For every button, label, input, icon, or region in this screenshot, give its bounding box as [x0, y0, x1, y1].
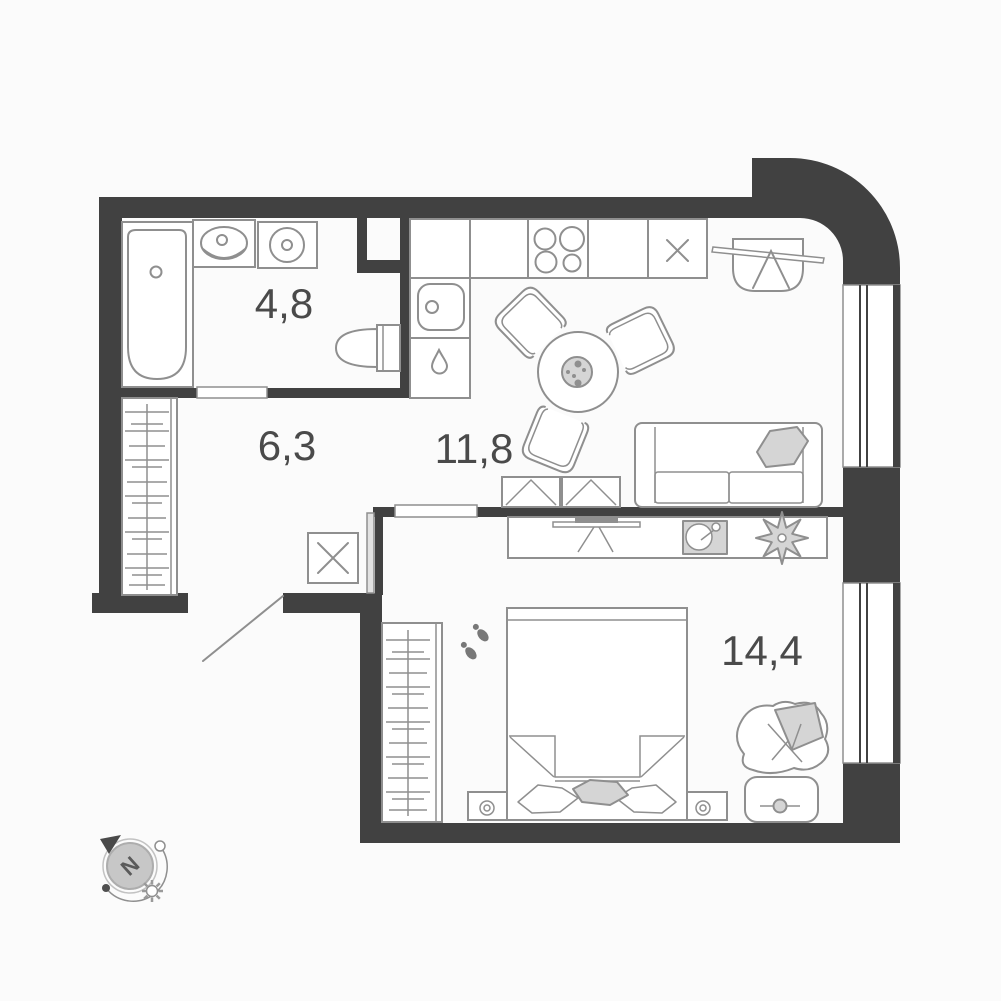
area-label-kitchen-living: 11,8 — [435, 425, 514, 472]
dining-table — [538, 332, 618, 412]
window-living-room — [843, 285, 900, 467]
area-label-bedroom: 14,4 — [721, 627, 803, 674]
compass: N — [100, 835, 167, 902]
area-label-hallway: 6,3 — [258, 422, 316, 469]
toilet — [336, 325, 400, 371]
washing-machine — [258, 222, 317, 268]
bedroom-wardrobe — [382, 623, 442, 822]
armchair — [737, 702, 828, 773]
bedroom-door-leaf — [367, 513, 374, 593]
bench-ottoman — [745, 777, 818, 822]
storage-pouf-2 — [562, 477, 620, 507]
storage-pouf-1 — [502, 477, 560, 507]
bathroom-door — [197, 387, 267, 398]
area-label-bathroom: 4,8 — [255, 280, 313, 327]
floor-plan: 4,8 6,3 11,8 14,4 N — [0, 0, 1001, 1001]
floor-plan-page: 4,8 6,3 11,8 14,4 N — [0, 0, 1001, 1001]
dining-chair-3 — [520, 405, 590, 475]
footprints — [458, 622, 490, 662]
sliding-door-divider — [395, 505, 477, 517]
plant — [756, 512, 808, 564]
hallway-wardrobe — [122, 398, 177, 595]
utility-box — [308, 533, 358, 583]
nightstand-left — [468, 792, 507, 820]
washbasin — [193, 220, 255, 267]
sun-icon — [142, 880, 163, 902]
bathtub — [122, 222, 193, 387]
window-bedroom — [843, 583, 900, 763]
sofa — [635, 423, 822, 507]
record-player — [683, 521, 727, 554]
nightstand-right — [687, 792, 727, 820]
entrance-door-swing — [203, 596, 283, 661]
drying-rack — [712, 239, 824, 291]
